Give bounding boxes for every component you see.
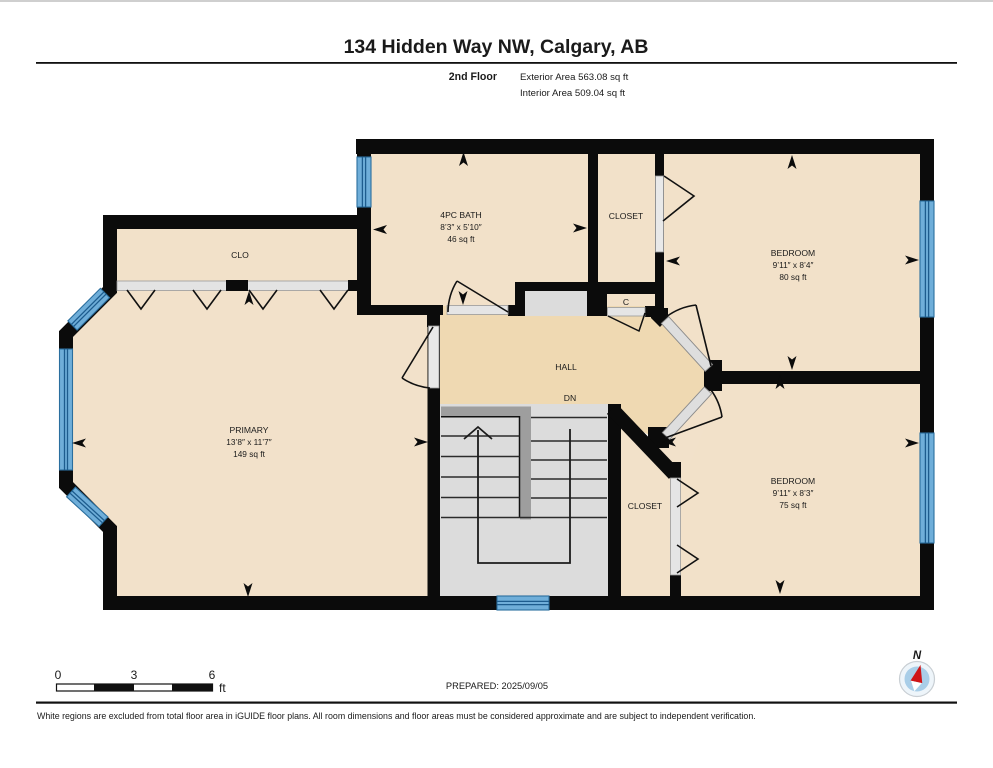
svg-text:13’8″ x 11’7″: 13’8″ x 11’7″: [226, 437, 271, 447]
svg-text:N: N: [913, 650, 922, 662]
svg-text:75 sq ft: 75 sq ft: [779, 500, 807, 510]
svg-text:PRIMARY: PRIMARY: [230, 425, 269, 435]
svg-text:3: 3: [131, 668, 138, 682]
svg-text:80 sq ft: 80 sq ft: [779, 272, 807, 282]
svg-text:Exterior Area 563.08 sq ft: Exterior Area 563.08 sq ft: [520, 72, 629, 83]
svg-text:CLO: CLO: [231, 250, 249, 260]
svg-text:BEDROOM: BEDROOM: [771, 248, 815, 258]
svg-text:White regions are excluded fro: White regions are excluded from total fl…: [37, 711, 756, 721]
svg-text:9’11″ x 8’3″: 9’11″ x 8’3″: [773, 488, 814, 498]
svg-text:CLOSET: CLOSET: [628, 501, 663, 511]
svg-text:46 sq ft: 46 sq ft: [447, 234, 475, 244]
svg-text:8’3″ x 5’10″: 8’3″ x 5’10″: [440, 222, 481, 232]
svg-text:CLOSET: CLOSET: [609, 211, 644, 221]
svg-text:BEDROOM: BEDROOM: [771, 476, 815, 486]
svg-text:PREPARED: 2025/09/05: PREPARED: 2025/09/05: [446, 681, 548, 691]
svg-text:2nd Floor: 2nd Floor: [449, 71, 497, 83]
svg-text:0: 0: [55, 668, 62, 682]
svg-text:149 sq ft: 149 sq ft: [233, 449, 266, 459]
svg-text:C: C: [623, 297, 629, 307]
svg-text:6: 6: [209, 668, 216, 682]
svg-text:DN: DN: [564, 393, 576, 403]
svg-text:Interior Area 509.04 sq ft: Interior Area 509.04 sq ft: [520, 88, 625, 99]
svg-text:4PC BATH: 4PC BATH: [440, 210, 481, 220]
svg-text:ft: ft: [219, 681, 226, 695]
svg-text:9’11″ x 8’4″: 9’11″ x 8’4″: [773, 260, 814, 270]
svg-text:HALL: HALL: [555, 362, 577, 372]
svg-text:134 Hidden Way NW, Calgary, AB: 134 Hidden Way NW, Calgary, AB: [344, 36, 649, 58]
